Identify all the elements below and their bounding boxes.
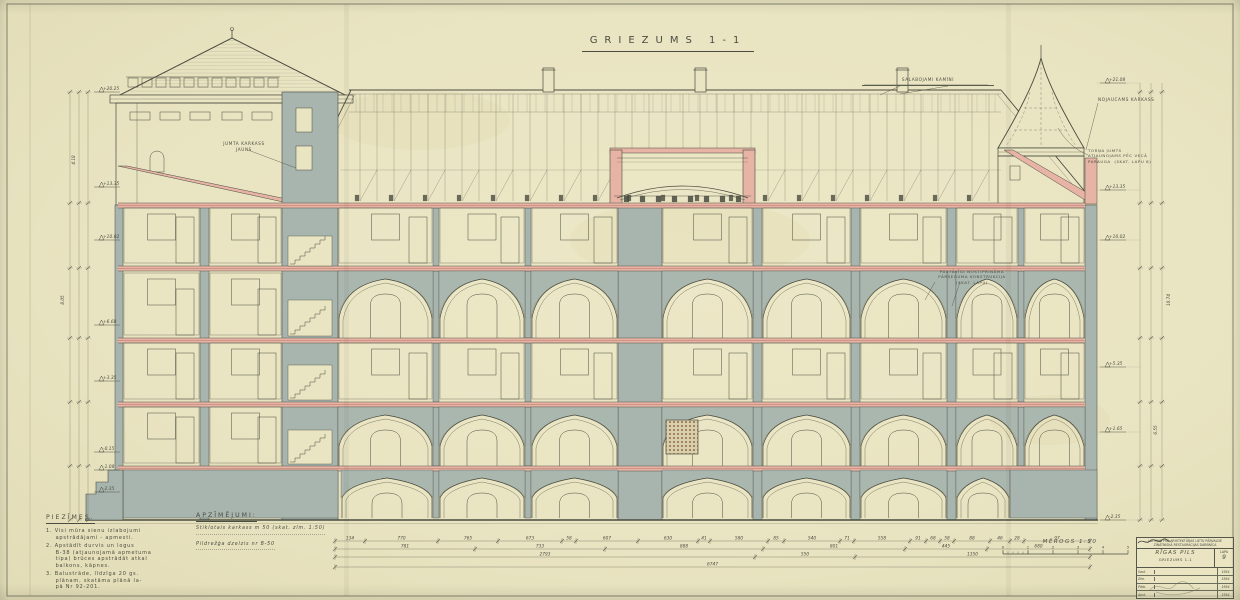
central-pier: [618, 205, 662, 520]
title-block-year: 1954: [1218, 585, 1233, 589]
window: [232, 214, 260, 240]
pavilion-lintel: [610, 148, 755, 153]
window: [232, 349, 260, 375]
elevation-value: +10.02: [1109, 234, 1125, 240]
vault-arc-inner: [1029, 283, 1080, 338]
vault-niche: [792, 430, 822, 466]
door: [501, 217, 519, 263]
room-outline: [663, 343, 752, 399]
truss-pad: [933, 195, 937, 201]
partition-pier: [433, 470, 439, 518]
legend-line: Stiklotais karkass m 50 (skat. zīm. 1:50…: [196, 526, 325, 534]
vault-niche: [467, 294, 497, 338]
dimension-value: 765: [464, 536, 472, 542]
door: [258, 353, 276, 399]
door: [409, 353, 427, 399]
vault-niche: [792, 493, 822, 518]
ornamental-grille: [666, 420, 698, 454]
truss-brace: [428, 170, 445, 201]
label-cornice: NOJAUCAMS KARKASS: [1098, 97, 1202, 103]
truss-pad: [423, 195, 427, 201]
window: [148, 279, 176, 305]
title-block-role: Zīm.: [1137, 577, 1155, 581]
title-block-role: Pārb.: [1137, 585, 1155, 589]
partition-pier: [433, 407, 439, 466]
legend-block: APZĪMĒJUMI: Stiklotais karkass m 50 (ska…: [196, 512, 396, 557]
room-outline: [124, 208, 199, 263]
dimension-value: 733: [536, 544, 544, 550]
vault-arc-inner: [667, 283, 748, 338]
room-outline: [440, 208, 524, 263]
title-block-year: 1954: [1218, 570, 1233, 574]
vault-spandrel: [439, 470, 525, 498]
truss-brace: [904, 170, 921, 201]
window: [793, 349, 821, 375]
vault-arc-inner: [343, 419, 428, 466]
truss-brace: [836, 170, 853, 201]
notes-heading: PIEZĪMES.: [46, 514, 95, 524]
chain-total: 6.55: [1153, 425, 1158, 435]
dimension-value: 445: [942, 544, 950, 550]
baluster: [624, 196, 629, 202]
vault-spandrel: [531, 470, 618, 498]
partition-pier: [433, 343, 439, 402]
title-block-year: 1954: [1218, 593, 1233, 597]
core-window: [296, 146, 312, 170]
truss-pad: [559, 195, 563, 201]
dimension-value: 6747: [707, 562, 718, 568]
sheet-number-value: 9: [1215, 554, 1233, 561]
vault-arc-inner: [536, 419, 613, 466]
room-outline: [124, 343, 199, 399]
partition-pier: [525, 271, 531, 338]
vault-spandrel: [662, 470, 753, 498]
vault-arc-inner: [865, 419, 942, 466]
partition-pier: [433, 208, 439, 266]
tower-window: [130, 112, 150, 120]
paper-stain: [330, 90, 510, 150]
window: [468, 214, 496, 240]
chimney: [543, 68, 554, 92]
scale-label: MĒROGS 1:50: [1012, 539, 1128, 546]
window: [890, 214, 918, 240]
vault-niche: [693, 294, 723, 338]
basement-mass: [123, 470, 338, 518]
vault-arc-inner: [536, 482, 613, 518]
dimension-value: 58: [944, 536, 950, 542]
room-outline: [440, 343, 524, 399]
section-drawing-canvas: +20.25+13.35+10.02+6.68+3.35-0.15-1.08-2…: [0, 0, 1240, 600]
truss-brace: [870, 170, 887, 201]
vault-arc-inner: [767, 419, 846, 466]
vault-niche: [968, 493, 998, 518]
truss-brace: [530, 170, 547, 201]
dimension-value: 801: [830, 544, 838, 550]
door: [176, 289, 194, 335]
partition-pier: [1018, 343, 1024, 402]
dimension-value: 888: [680, 544, 688, 550]
door: [258, 289, 276, 335]
baluster: [736, 196, 741, 202]
title-block-row: Apst.1954: [1137, 591, 1233, 598]
elevation-value: +3.35: [103, 375, 117, 381]
room-outline: [124, 273, 199, 335]
elevation-value: +10.02: [103, 234, 119, 240]
vault-arc-inner: [444, 482, 520, 518]
window: [148, 349, 176, 375]
title-block-signature: [1155, 591, 1218, 598]
vault-niche: [467, 493, 497, 518]
partition-pier: [525, 208, 531, 266]
dimension-value: 68: [930, 536, 936, 542]
balustrade-block: [128, 78, 138, 87]
truss-brace: [938, 170, 955, 201]
dimension-value: 2793: [540, 552, 551, 558]
dimension-value: 770: [397, 536, 405, 542]
door: [923, 217, 941, 263]
truss-pad: [899, 195, 903, 201]
door: [923, 353, 941, 399]
tower-window: [222, 112, 242, 120]
truss-brace: [496, 170, 513, 201]
sheet-title-text: GRIEZUMS 1-1: [582, 34, 755, 52]
vault-niche: [371, 294, 401, 338]
vault-spandrel: [531, 271, 618, 318]
vault-arc-inner: [767, 482, 846, 518]
sheet-number-cell: LAPA 9: [1215, 549, 1233, 567]
vault-spandrel: [762, 271, 851, 318]
truss-pad: [967, 195, 971, 201]
baluster: [688, 196, 693, 202]
tower2-window: [1010, 166, 1020, 180]
vault-spandrel: [662, 271, 753, 318]
vault-arc-inner: [961, 482, 1005, 518]
door: [827, 217, 845, 263]
tower-roof: [116, 38, 349, 97]
vault-arc-inner: [667, 482, 748, 518]
door: [501, 353, 519, 399]
vault-arc-inner: [865, 482, 942, 518]
truss-brace: [360, 170, 377, 201]
drawing-sheet: +20.25+13.35+10.02+6.68+3.35-0.15-1.08-2…: [0, 0, 1240, 600]
legend-line: Pildrežģa dzelzis nr B-50: [196, 542, 275, 550]
roof-slope-left: [118, 166, 306, 205]
vault-arc-inner: [343, 283, 428, 338]
window: [232, 413, 260, 439]
vault-niche: [693, 493, 723, 518]
elevation-value: +1.65: [1109, 426, 1123, 432]
elevation-value: +20.25: [103, 86, 119, 92]
room-outline: [1025, 208, 1084, 263]
vault-niche: [889, 294, 919, 338]
wall-pier: [947, 205, 956, 520]
chain-total: 10.74: [1166, 294, 1171, 306]
room-outline: [210, 273, 281, 335]
vault-arc-inner: [865, 283, 942, 338]
dimension-value: 558: [878, 536, 886, 542]
window: [148, 413, 176, 439]
room-outline: [210, 208, 281, 263]
vault-arc-inner: [767, 283, 846, 338]
elevation-value: +6.68: [103, 319, 117, 325]
legend-heading: APZĪMĒJUMI:: [196, 512, 257, 522]
dimension-value: 58: [566, 536, 572, 542]
label-vault-structure: PASTĀVĪGI NOSTIPRINĀMA PĀRSEGUMA KONSTRU…: [920, 269, 1024, 285]
signature-scribble-small: [1137, 538, 1171, 545]
truss-pad: [831, 195, 835, 201]
dimension-value: 550: [801, 552, 809, 558]
room-outline: [210, 343, 281, 399]
dimension-value: 71: [844, 536, 850, 542]
sheet-title: GRIEZUMS 1-1: [548, 34, 788, 52]
fold-line: [344, 4, 349, 596]
elevation-value: -2.35: [1109, 514, 1121, 520]
truss-pad: [457, 195, 461, 201]
note-item: 3. Balustrāde, līdzīga 20 gs. plānam, sk…: [46, 571, 188, 591]
scalebar-number: 0: [1002, 545, 1005, 550]
door: [176, 417, 194, 463]
vault-arc-inner: [536, 283, 613, 338]
elevation-value: +13.35: [103, 181, 119, 187]
vault-spandrel: [439, 271, 525, 318]
window: [890, 349, 918, 375]
door: [827, 353, 845, 399]
title-block: LATVIJAS PSR ARHITEKTŪRAS LIETU PĀRVALDE…: [1136, 537, 1234, 599]
dimension-value: 46: [997, 536, 1003, 542]
vault-niche: [560, 430, 590, 466]
wall-brick-right: [1085, 158, 1097, 204]
title-block-role: Sast.: [1137, 570, 1155, 574]
vault-arc-inner: [444, 419, 520, 466]
note-item: 2. Apstādīt durvis un logus B-38 (atjaun…: [46, 543, 188, 569]
vault-niche: [792, 294, 822, 338]
chain-total: 4.18: [71, 155, 76, 165]
dimension-value: 630: [664, 536, 672, 542]
window: [694, 349, 722, 375]
core-window: [296, 108, 312, 132]
title-block-row: Pārb.1954: [1137, 584, 1233, 592]
fold-line: [1006, 4, 1011, 596]
truss-pad: [797, 195, 801, 201]
label-tower-spire: TORŅA JUMTS ATJAUNOJAMS PĒC VECĀ PARAUGA…: [1088, 148, 1204, 164]
title-block-role: Apst.: [1137, 593, 1155, 597]
vault-niche: [560, 493, 590, 518]
window: [372, 214, 400, 240]
dimension-value: 540: [808, 536, 816, 542]
title-block-signature: [1155, 584, 1218, 591]
dimension-value: 41: [701, 536, 707, 542]
room-outline: [339, 208, 432, 263]
wall-pier: [851, 205, 860, 520]
truss-brace: [768, 170, 785, 201]
window: [561, 349, 589, 375]
vault-niche: [371, 430, 401, 466]
partition-pier: [525, 470, 531, 518]
truss-pad: [355, 195, 359, 201]
window: [148, 214, 176, 240]
wall-pier: [753, 205, 762, 520]
truss-brace: [802, 170, 819, 201]
vault-spandrel: [762, 470, 851, 498]
dimension-value: 91: [915, 536, 921, 542]
title-block-drawing-name: GRIEZUMS 1-1: [1137, 557, 1214, 562]
partition-pier: [525, 343, 531, 402]
note-item: 1. Visi mūra sienu izlabojumi apstrādāja…: [46, 528, 188, 541]
truss-brace: [564, 170, 581, 201]
title-block-signature: [1155, 576, 1218, 583]
partition-pier: [525, 407, 531, 466]
baluster: [672, 196, 677, 202]
dimension-value: 607: [603, 536, 611, 542]
chain-total: 8.05: [60, 295, 65, 305]
truss-pad: [389, 195, 393, 201]
vault-spandrel: [860, 407, 947, 446]
truss-brace: [972, 170, 989, 201]
truss-pad: [763, 195, 767, 201]
vault-niche: [972, 294, 1002, 338]
leader: [1086, 103, 1098, 150]
basement-mass: [1010, 470, 1097, 518]
room-outline: [210, 407, 281, 463]
dimension-value: 85: [773, 536, 779, 542]
room-outline: [532, 343, 617, 399]
door: [258, 417, 276, 463]
vault-spandrel: [341, 470, 433, 498]
baluster: [720, 196, 725, 202]
roof-slope-right: [1004, 150, 1093, 200]
dimension-value: 673: [526, 536, 534, 542]
truss-pad: [865, 195, 869, 201]
truss-pad: [491, 195, 495, 201]
terrain-steps: [86, 470, 123, 520]
door: [176, 217, 194, 263]
room-outline: [124, 407, 199, 463]
vault-spandrel: [338, 271, 433, 318]
truss-brace: [462, 170, 479, 201]
dimension-value: 1350: [967, 552, 978, 558]
elevation-value: -0.15: [103, 446, 115, 452]
truss-pad: [525, 195, 529, 201]
vault-niche: [1040, 294, 1070, 338]
room-outline: [861, 208, 946, 263]
window: [372, 349, 400, 375]
dimension-value: 88: [969, 536, 975, 542]
window: [232, 279, 260, 305]
truss-pad: [593, 195, 597, 201]
room-outline: [861, 343, 946, 399]
door: [176, 353, 194, 399]
title-block-row: Sast.1954: [1137, 568, 1233, 576]
window: [468, 349, 496, 375]
vault-niche: [889, 430, 919, 466]
vault-spandrel: [956, 470, 1010, 498]
door: [1061, 353, 1079, 399]
elevation-value: +5.35: [1109, 361, 1123, 367]
dimension-value: 781: [401, 544, 409, 550]
dimension-value: 580: [735, 536, 743, 542]
room-outline: [339, 343, 432, 399]
elevation-value: -1.08: [103, 464, 115, 470]
partition-pier: [433, 271, 439, 338]
vault-spandrel: [531, 407, 618, 446]
door: [258, 217, 276, 263]
room-outline: [1025, 343, 1084, 399]
partition-pier: [1018, 208, 1024, 266]
chimney: [695, 68, 706, 92]
door: [729, 353, 747, 399]
vault-niche: [972, 430, 1002, 466]
baluster: [640, 196, 645, 202]
vault-niche: [889, 493, 919, 518]
window: [1041, 214, 1069, 240]
title-block-object: RĪGAS PILS: [1137, 550, 1214, 556]
title-block-signature: [1155, 568, 1218, 575]
door: [409, 217, 427, 263]
vault-arc-inner: [444, 283, 520, 338]
elevation-value: +21.08: [1109, 77, 1125, 83]
baluster: [656, 196, 661, 202]
title-block-row: Zīm.1954: [1137, 576, 1233, 584]
notes-block: PIEZĪMES. 1. Visi mūra sienu izlabojumi …: [46, 514, 188, 593]
baluster: [704, 196, 709, 202]
truss-brace: [394, 170, 411, 201]
label-roof-truss: JUMTA KARKASS JAUNS: [196, 141, 292, 152]
room-outline: [763, 343, 850, 399]
tower-arched-window: [150, 151, 164, 172]
title-block-main-cell: RĪGAS PILS GRIEZUMS 1-1: [1137, 549, 1215, 567]
tower-window: [190, 112, 210, 120]
vault-niche: [467, 430, 497, 466]
vault-niche: [560, 294, 590, 338]
tower-window: [160, 112, 180, 120]
vault-arc-inner: [961, 283, 1013, 338]
title-block-signature-rows: Sast.1954Zīm.1954Pārb.1954Apst.1954: [1137, 568, 1233, 598]
title-block-year: 1954: [1218, 577, 1233, 581]
partition-pier: [1018, 407, 1024, 466]
door: [594, 353, 612, 399]
tower-window: [252, 112, 272, 120]
label-chimneys: SALABOJAMI KAMĪNI: [862, 77, 994, 86]
vault-spandrel: [439, 407, 525, 446]
elevation-value: +13.35: [1109, 184, 1125, 190]
elevation-value: -2.35: [103, 486, 115, 492]
vault-spandrel: [860, 470, 947, 498]
window: [973, 214, 1001, 240]
